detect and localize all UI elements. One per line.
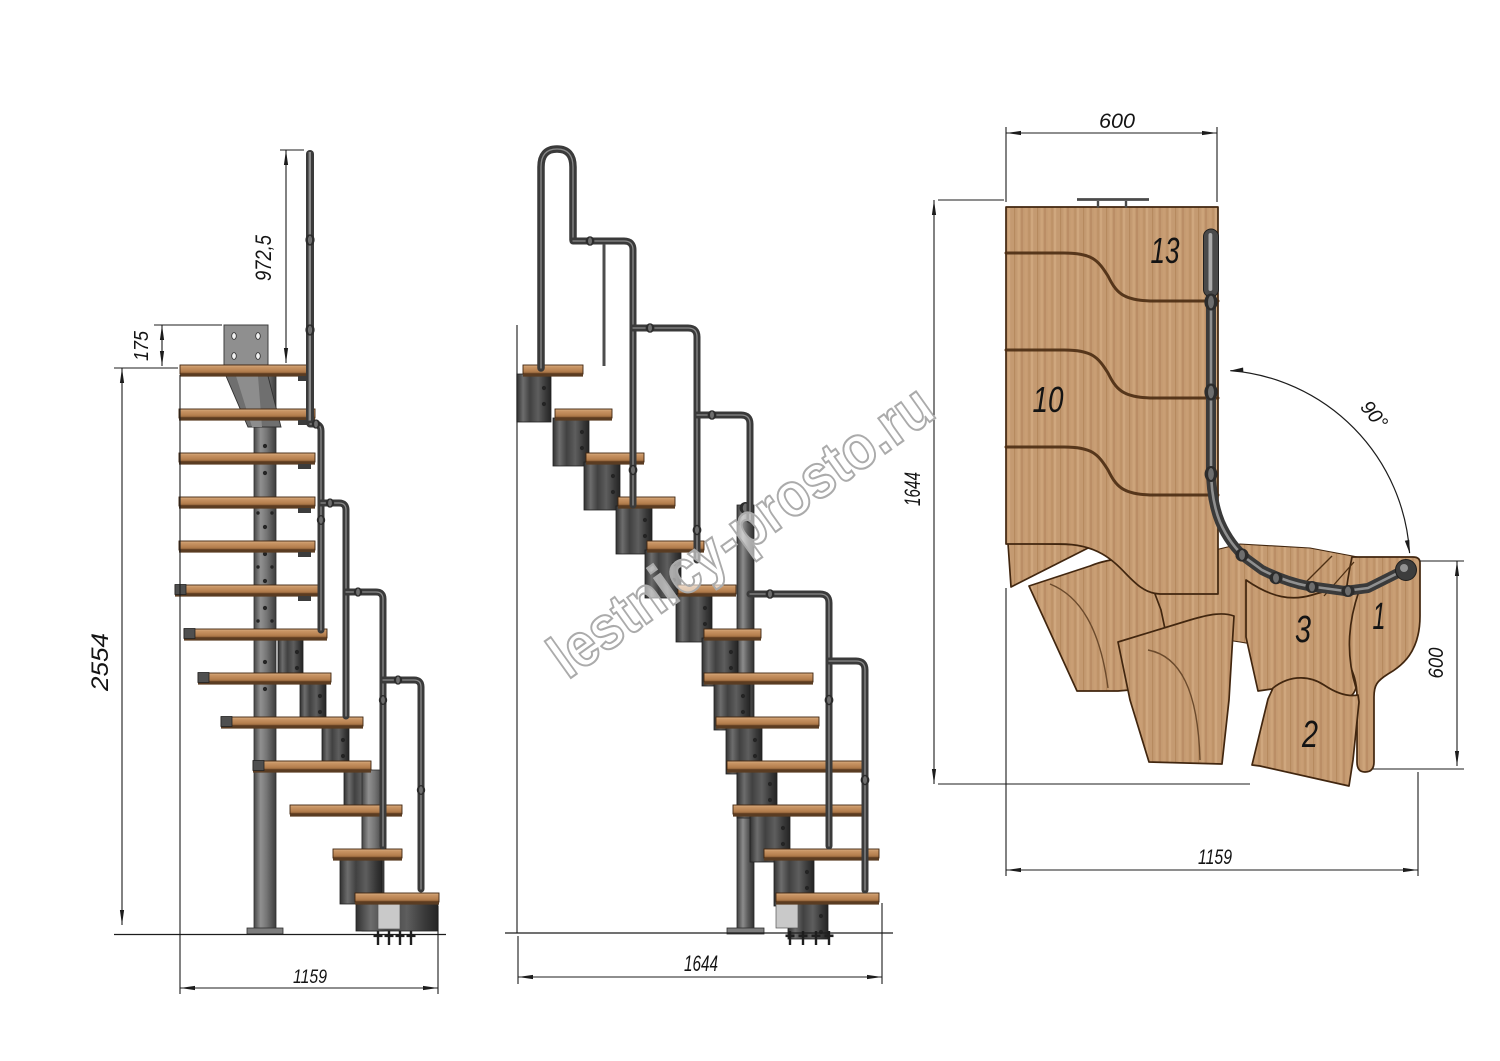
svg-text:600: 600: [1425, 647, 1448, 678]
svg-text:600: 600: [1099, 110, 1135, 133]
svg-text:13: 13: [1151, 230, 1180, 271]
svg-text:10: 10: [1033, 379, 1064, 420]
svg-text:1159: 1159: [293, 967, 327, 988]
svg-text:2: 2: [1301, 714, 1318, 756]
svg-text:972,5: 972,5: [251, 234, 276, 281]
svg-text:3: 3: [1295, 609, 1311, 651]
svg-text:1: 1: [1373, 596, 1386, 638]
svg-text:1644: 1644: [900, 472, 925, 506]
svg-text:175: 175: [131, 330, 153, 361]
svg-text:1159: 1159: [1198, 846, 1232, 869]
svg-text:2554: 2554: [87, 633, 114, 692]
svg-text:1644: 1644: [684, 951, 718, 976]
